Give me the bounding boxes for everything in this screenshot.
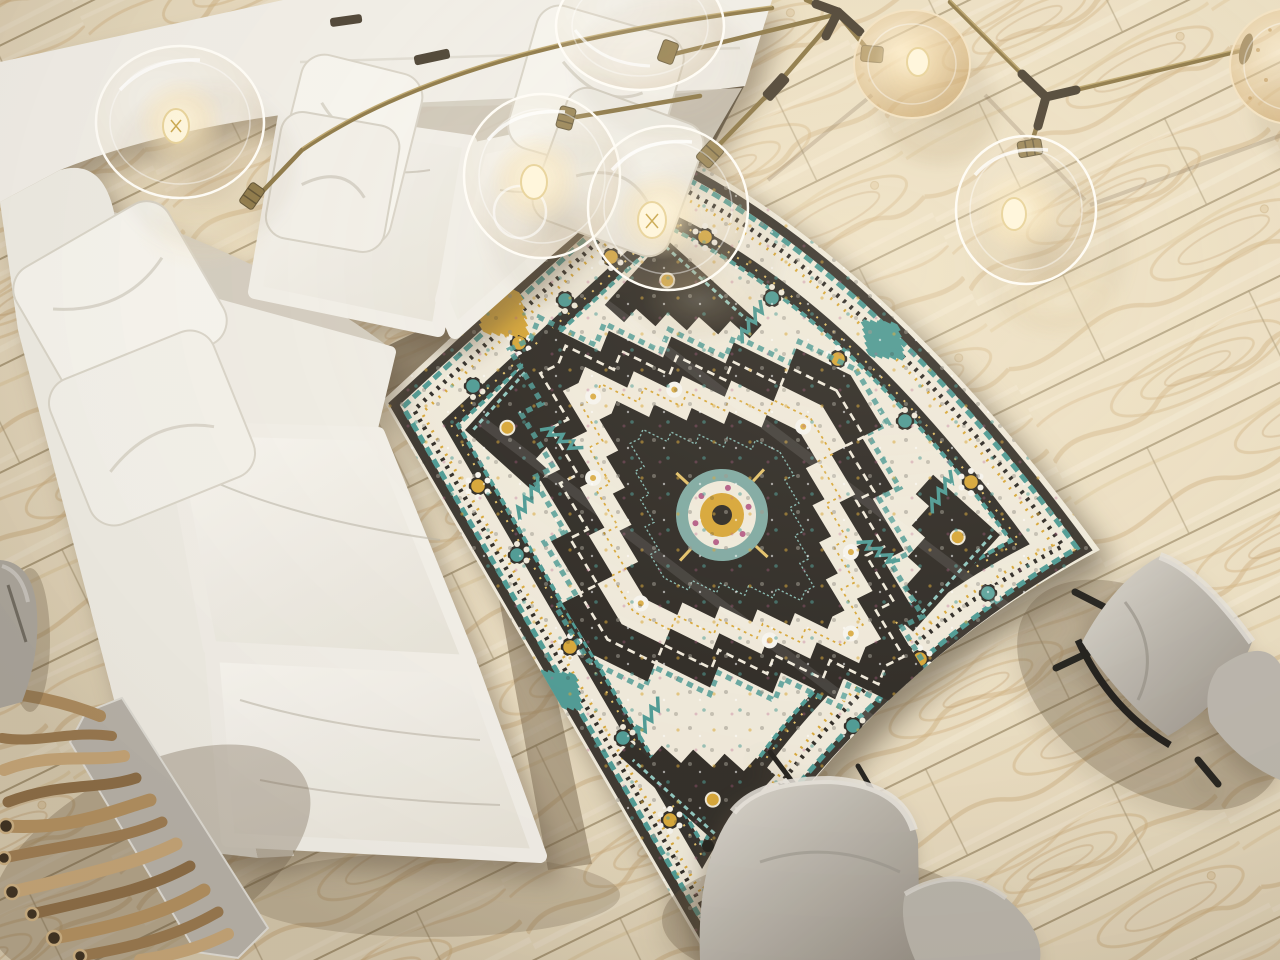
vignette xyxy=(0,0,1280,960)
living-room-scene xyxy=(0,0,1280,960)
scene-canvas xyxy=(0,0,1280,960)
